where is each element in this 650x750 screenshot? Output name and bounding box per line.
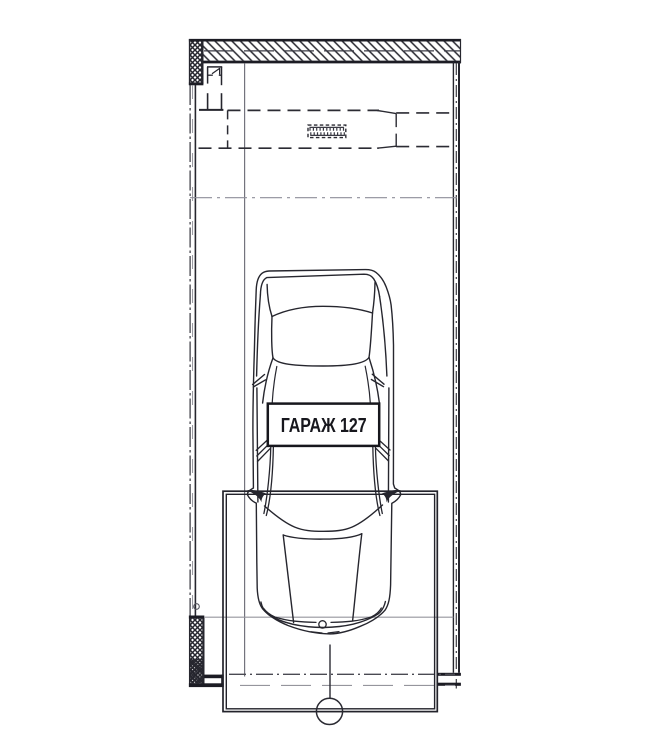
- svg-text:ГАРАЖ 127: ГАРАЖ 127: [281, 415, 367, 437]
